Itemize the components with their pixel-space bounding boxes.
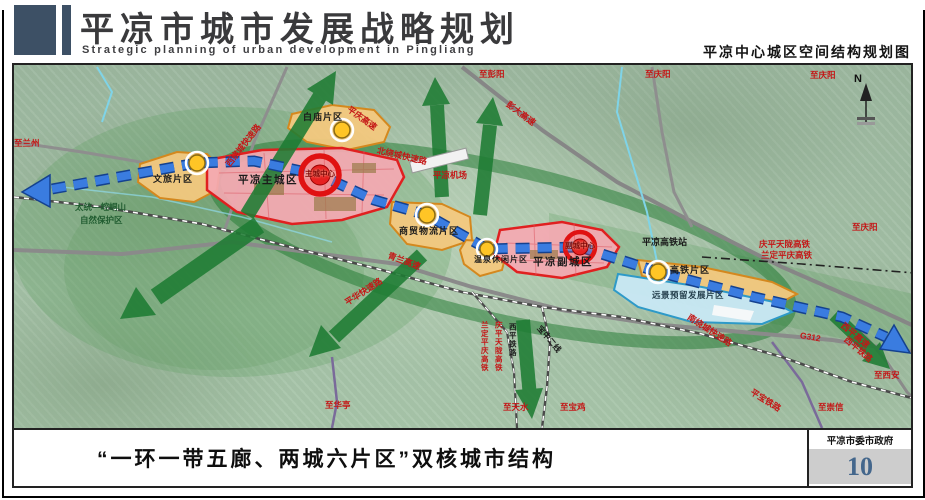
label-to-tianshui: 至天水 [503, 403, 529, 412]
planning-poster-page: 平凉市城市发展战略规划 Strategic planning of urban … [0, 0, 925, 500]
label-hsr-qptl: 庆平天陇高铁 [759, 240, 810, 249]
spatial-structure-map: N 至兰州 太统—崆峒山 自然保护区 文旅片区 平凉主城区 主城中心 白庙片区 … [12, 63, 913, 430]
compass-north-label: N [854, 73, 862, 85]
page-number: 10 [809, 449, 911, 484]
label-to-huating: 至华亭 [325, 401, 351, 410]
label-to-chongxin: 至崇信 [818, 403, 844, 412]
header-accent-bar [62, 5, 71, 55]
zone-label-culture-tourism: 文旅片区 [153, 175, 193, 185]
compass-icon [857, 83, 875, 125]
zone-label-trade-logistics: 商贸物流片区 [399, 227, 459, 237]
core-label-sub: 副城中心 [548, 242, 612, 250]
zone-label-hotspring: 温泉休闲片区 [474, 256, 528, 265]
zone-label-sub-city: 平凉副城区 [533, 257, 593, 269]
road-to-huating [332, 357, 337, 428]
label-hsr-station: 平凉高铁站 [642, 238, 687, 248]
label-to-xian: 至西安 [874, 371, 900, 380]
label-nature-reserve-line1: 太统—崆峒山 [75, 203, 126, 212]
label-to-baoji: 至宝鸡 [560, 403, 586, 412]
label-to-lanzhou: 至兰州 [14, 139, 40, 148]
label-to-qingyang-top: 至庆阳 [645, 70, 671, 79]
agency-name: 平凉市委市政府 [809, 430, 911, 449]
header-accent-square [14, 5, 56, 55]
label-hsr-ldpq-v: 兰定平庆高铁 [480, 321, 488, 372]
label-to-qingyang-topright: 至庆阳 [810, 71, 836, 80]
structure-caption: “一环一带五廊、两城六片区”双核城市结构 [97, 443, 556, 473]
label-xiping-railway-v: 西平铁路 [508, 323, 516, 357]
map-title: 平凉中心城区空间结构规划图 [703, 42, 911, 62]
label-to-qingyang-east: 至庆阳 [852, 223, 878, 232]
zone-label-hsr-district: 高铁片区 [670, 266, 710, 276]
label-to-pengyang: 至彭阳 [479, 70, 505, 79]
core-label-main: 主城中心 [288, 170, 352, 178]
page-subtitle-english: Strategic planning of urban development … [82, 44, 476, 56]
label-nature-reserve-line2: 自然保护区 [80, 216, 123, 225]
label-hsr-ldpq: 兰定平庆高铁 [761, 251, 812, 260]
label-hsr-qptl-v: 庆平天陇高铁 [494, 321, 502, 372]
page-number-box: 平凉市委市政府 10 [807, 430, 911, 486]
road-to-chongxin [772, 342, 822, 428]
river-northwest [97, 67, 112, 122]
zone-label-reserved: 远景预留发展片区 [652, 291, 724, 300]
page-footer: “一环一带五廊、两城六片区”双核城市结构 平凉市委市政府 10 [12, 430, 913, 488]
label-airport: 平凉机场 [433, 171, 467, 180]
zone-label-baimiao: 白庙片区 [303, 113, 343, 123]
